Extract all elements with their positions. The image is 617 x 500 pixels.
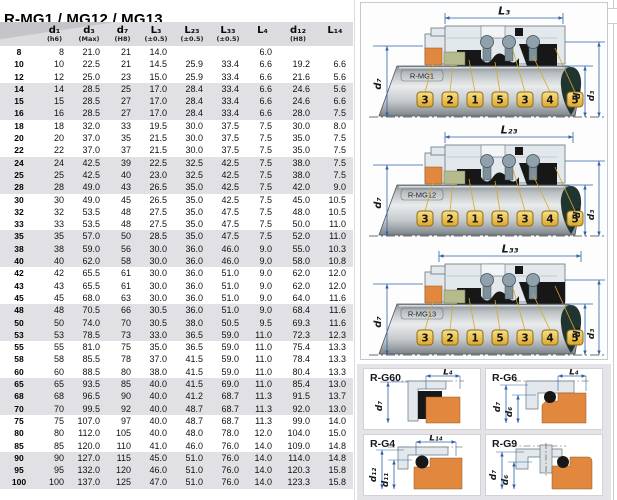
cell: 107.0 bbox=[71, 415, 107, 427]
callout-box: 4 bbox=[542, 92, 558, 107]
cell: 55 bbox=[38, 341, 71, 353]
cell: 36.0 bbox=[174, 292, 210, 304]
cell: 120.3 bbox=[279, 464, 317, 476]
cell: 110 bbox=[107, 440, 138, 452]
table-row: 686896.59040.041.268.711.391.513.7 bbox=[0, 390, 353, 402]
cell: 9.0 bbox=[246, 243, 279, 255]
cell: 51.0 bbox=[174, 452, 210, 464]
cell: 63 bbox=[107, 292, 138, 304]
top-dimension: L₃₃ bbox=[439, 243, 581, 263]
cell: 48.0 bbox=[279, 206, 317, 218]
cell: 30 bbox=[38, 194, 71, 206]
cell: 85 bbox=[38, 440, 71, 452]
cell: 68.7 bbox=[210, 403, 246, 415]
table-body: 8821.02114.06.0101022.52114.525.933.46.6… bbox=[0, 46, 353, 489]
cell: 7.5 bbox=[246, 230, 279, 242]
row-size-label: 8 bbox=[0, 46, 38, 58]
cell: 11.6 bbox=[317, 292, 353, 304]
cell: 38 bbox=[38, 243, 71, 255]
table-row: 141428.52517.028.433.46.624.65.6 bbox=[0, 83, 353, 95]
cell: 36.0 bbox=[174, 304, 210, 316]
cell: 73 bbox=[107, 329, 138, 341]
row-size-label: 90 bbox=[0, 452, 38, 464]
cell: 6.6 bbox=[246, 71, 279, 83]
seat-panel-g4: R-G4 L₁₄d₁₂d₁₁ bbox=[363, 434, 481, 496]
cell: 40 bbox=[107, 169, 138, 181]
cell: 7.5 bbox=[246, 181, 279, 193]
cell: 70 bbox=[107, 317, 138, 329]
cell: 7.5 bbox=[317, 157, 353, 169]
cell: 35.0 bbox=[279, 132, 317, 144]
cell: 48.0 bbox=[174, 427, 210, 439]
row-size-label: 50 bbox=[0, 317, 38, 329]
callout-box: 3 bbox=[517, 330, 533, 345]
table-row: 484870.56630.536.051.09.068.411.6 bbox=[0, 304, 353, 316]
callout-box: 3 bbox=[517, 211, 533, 226]
callout-box: 3 bbox=[517, 92, 533, 107]
column-header: d₃(Max) bbox=[71, 22, 107, 46]
seal-diagram-mg1: R-MG1 3 2 1 5 3 4 5 L₃ d₇ d₁ bbox=[361, 4, 607, 122]
cell: 127.0 bbox=[71, 452, 107, 464]
cell: 65.5 bbox=[71, 280, 107, 292]
cell: 68.7 bbox=[210, 390, 246, 402]
page-edge-tab bbox=[607, 8, 617, 24]
row-size-label: 45 bbox=[0, 292, 38, 304]
row-size-label: 10 bbox=[0, 58, 38, 70]
cell: 42.5 bbox=[210, 194, 246, 206]
table-row: 8585120.011041.046.076.014.0109.014.8 bbox=[0, 440, 353, 452]
cell: 40.0 bbox=[138, 403, 174, 415]
cell: 21.5 bbox=[138, 132, 174, 144]
cell: 75 bbox=[107, 341, 138, 353]
cell: 50 bbox=[107, 230, 138, 242]
cell: 10.8 bbox=[317, 255, 353, 267]
cell: 41.0 bbox=[138, 440, 174, 452]
cell: 11.6 bbox=[317, 304, 353, 316]
row-size-label: 70 bbox=[0, 403, 38, 415]
table-row: 656593.58540.041.569.011.085.413.0 bbox=[0, 378, 353, 390]
table-row: 181832.03319.530.037.57.530.08.0 bbox=[0, 120, 353, 132]
cell: 11.0 bbox=[317, 230, 353, 242]
row-size-label: 28 bbox=[0, 181, 38, 193]
cell: 13.7 bbox=[317, 390, 353, 402]
column-header: L₄ bbox=[246, 22, 279, 46]
svg-text:1: 1 bbox=[471, 333, 478, 345]
dim-label-d1: d₁ bbox=[573, 208, 583, 218]
table-row: 121225.02315.025.933.46.621.65.6 bbox=[0, 71, 353, 83]
cell: 46.0 bbox=[210, 243, 246, 255]
cell: 58 bbox=[107, 255, 138, 267]
dimensions-table: d₁(h6)d₃(Max)d₇(H8)L₃(±0.5)L₂₃(±0.5)L₃₃(… bbox=[0, 22, 353, 489]
cell: 41.2 bbox=[174, 390, 210, 402]
dim-label-d6: d₆ bbox=[505, 407, 515, 417]
cell: 61 bbox=[107, 280, 138, 292]
cell: 10.5 bbox=[317, 206, 353, 218]
svg-text:3: 3 bbox=[421, 214, 428, 226]
cell: 15.0 bbox=[317, 427, 353, 439]
row-size-label: 18 bbox=[0, 120, 38, 132]
cell: 99.0 bbox=[279, 415, 317, 427]
dim-label-d11: d₁₁ bbox=[381, 473, 391, 487]
cell: 100 bbox=[38, 476, 71, 488]
cell: 48 bbox=[107, 218, 138, 230]
seal-diagram-mg13: R-MG13 3 2 1 5 3 4 5 L₃₃ d₇ d₁ bbox=[361, 242, 607, 360]
seat-ring bbox=[425, 48, 442, 65]
cell: 52.0 bbox=[279, 230, 317, 242]
cell: 58 bbox=[38, 353, 71, 365]
cell: 90 bbox=[38, 452, 71, 464]
cell: 99.5 bbox=[71, 403, 107, 415]
row-size-label: 16 bbox=[0, 107, 38, 119]
cell: 35.0 bbox=[174, 218, 210, 230]
dim-label-top: L₂₃ bbox=[501, 124, 518, 137]
table-row: 222237.03721.530.037.57.535.07.5 bbox=[0, 144, 353, 156]
row-size-label: 43 bbox=[0, 280, 38, 292]
cell: 40.0 bbox=[138, 415, 174, 427]
table-row: 303049.04526.535.042.57.545.010.5 bbox=[0, 194, 353, 206]
table-row: 9090127.011545.051.076.014.0114.014.8 bbox=[0, 452, 353, 464]
table-row: 282849.04326.535.042.57.542.09.0 bbox=[0, 181, 353, 193]
table-row: 151528.52717.028.433.46.624.66.6 bbox=[0, 95, 353, 107]
cell: 33.0 bbox=[138, 329, 174, 341]
cell: 42.5 bbox=[71, 157, 107, 169]
cell: 59.0 bbox=[71, 243, 107, 255]
svg-text:5: 5 bbox=[496, 333, 503, 345]
cell: 36.5 bbox=[174, 341, 210, 353]
seat-panel-label: R-G6 bbox=[492, 372, 517, 384]
cell: 42 bbox=[38, 267, 71, 279]
cell: 66 bbox=[107, 304, 138, 316]
left-dimension: d₇ bbox=[375, 382, 408, 423]
cell: 27.5 bbox=[138, 206, 174, 218]
cell: 95 bbox=[38, 464, 71, 476]
cell: 90 bbox=[107, 390, 138, 402]
cell: 51.0 bbox=[174, 476, 210, 488]
callout-box: 2 bbox=[442, 92, 458, 107]
cell: 53.5 bbox=[71, 206, 107, 218]
model-label: R-MG13 bbox=[408, 310, 436, 319]
cell: 11.6 bbox=[317, 317, 353, 329]
cell: 51.0 bbox=[210, 292, 246, 304]
seal-diagrams-panel: R-MG1 3 2 1 5 3 4 5 L₃ d₇ d₁ bbox=[360, 2, 608, 360]
column-header: L₁₄ bbox=[317, 22, 353, 46]
cell: 22 bbox=[38, 144, 71, 156]
cell: 30.0 bbox=[138, 280, 174, 292]
table-row: 100100137.012547.051.076.014.0123.315.8 bbox=[0, 476, 353, 488]
column-header: d₇(H8) bbox=[107, 22, 138, 46]
cell: 120 bbox=[107, 464, 138, 476]
cell: 15 bbox=[38, 95, 71, 107]
cell: 12.3 bbox=[317, 329, 353, 341]
table-row: 535378.57333.036.559.011.072.312.3 bbox=[0, 329, 353, 341]
cell: 51.0 bbox=[174, 464, 210, 476]
cell: 37.5 bbox=[210, 144, 246, 156]
dim-label-d7: d₇ bbox=[373, 316, 384, 328]
cell: 105 bbox=[107, 427, 138, 439]
cell: 14.0 bbox=[246, 452, 279, 464]
cell bbox=[317, 46, 353, 58]
callout-box: 1 bbox=[467, 92, 483, 107]
row-size-label: 24 bbox=[0, 157, 38, 169]
cell: 37.5 bbox=[210, 120, 246, 132]
cell: 14.0 bbox=[246, 440, 279, 452]
cell: 11.0 bbox=[317, 218, 353, 230]
seat-panel-g60: R-G60 L₄d₇ bbox=[363, 368, 481, 430]
table-row: 434365.56130.036.051.09.062.012.0 bbox=[0, 280, 353, 292]
row-size-label: 55 bbox=[0, 341, 38, 353]
cell: 25.9 bbox=[174, 58, 210, 70]
cell: 35.0 bbox=[279, 144, 317, 156]
cell: 49.0 bbox=[71, 181, 107, 193]
row-size-label: 25 bbox=[0, 169, 38, 181]
cell: 17.0 bbox=[138, 83, 174, 95]
cell: 36.5 bbox=[174, 329, 210, 341]
cell: 33.4 bbox=[210, 71, 246, 83]
row-size-label: 75 bbox=[0, 415, 38, 427]
cell: 46.0 bbox=[174, 440, 210, 452]
cell: 36.0 bbox=[174, 280, 210, 292]
cell: 59.0 bbox=[210, 341, 246, 353]
cell: 30.0 bbox=[138, 292, 174, 304]
cell: 96.5 bbox=[71, 390, 107, 402]
cell: 15.8 bbox=[317, 476, 353, 488]
callout-box: 2 bbox=[442, 211, 458, 226]
cell: 30.0 bbox=[138, 243, 174, 255]
cell: 33.4 bbox=[210, 58, 246, 70]
table-row: 707099.59240.048.768.711.392.013.0 bbox=[0, 403, 353, 415]
dim-label-d7: d₇ bbox=[373, 197, 384, 209]
cell: 132.0 bbox=[71, 464, 107, 476]
dim-label-d1: d₁ bbox=[573, 89, 583, 99]
top-dimension: L₂₃ bbox=[445, 124, 573, 144]
seat-panel-label: R-G60 bbox=[370, 372, 401, 384]
cell: 26.5 bbox=[138, 181, 174, 193]
table-row: 252542.54023.032.542.57.538.07.5 bbox=[0, 169, 353, 181]
cell: 27 bbox=[107, 95, 138, 107]
cell: 38.0 bbox=[174, 317, 210, 329]
cell: 21 bbox=[107, 46, 138, 58]
cell: 39 bbox=[107, 157, 138, 169]
cell: 57.0 bbox=[71, 230, 107, 242]
cell: 74.0 bbox=[71, 317, 107, 329]
row-size-label: 48 bbox=[0, 304, 38, 316]
cell: 9.0 bbox=[246, 280, 279, 292]
svg-text:2: 2 bbox=[446, 95, 453, 107]
cell: 21.6 bbox=[279, 71, 317, 83]
cell: 12.0 bbox=[317, 280, 353, 292]
column-header: L₃₃(±0.5) bbox=[210, 22, 246, 46]
seat-ring bbox=[425, 167, 442, 184]
cell: 7.5 bbox=[317, 132, 353, 144]
dim-label-d7: d₇ bbox=[489, 470, 499, 480]
cell: 35.0 bbox=[174, 230, 210, 242]
cell: 9.0 bbox=[246, 304, 279, 316]
cell: 49.0 bbox=[71, 194, 107, 206]
cell: 76.0 bbox=[210, 464, 246, 476]
row-size-label: 35 bbox=[0, 230, 38, 242]
cell: 33.4 bbox=[210, 107, 246, 119]
cell: 62.0 bbox=[279, 267, 317, 279]
cell: 50 bbox=[38, 317, 71, 329]
callout-box: 4 bbox=[542, 330, 558, 345]
cell: 13.0 bbox=[317, 403, 353, 415]
row-size-label: 65 bbox=[0, 378, 38, 390]
cell: 33.4 bbox=[210, 95, 246, 107]
cell: 69.3 bbox=[279, 317, 317, 329]
cell: 21.5 bbox=[138, 144, 174, 156]
cell: 41.5 bbox=[174, 366, 210, 378]
shaft bbox=[379, 66, 578, 116]
cell: 47.5 bbox=[210, 230, 246, 242]
cell: 12.0 bbox=[246, 427, 279, 439]
cell: 36.0 bbox=[174, 255, 210, 267]
cell: 76.0 bbox=[210, 476, 246, 488]
cell: 7.5 bbox=[246, 132, 279, 144]
table-row: 424265.56130.036.051.09.062.012.0 bbox=[0, 267, 353, 279]
seal-diagram-mg12: R-MG12 3 2 1 5 3 4 5 L₂₃ d₇ d₁ bbox=[361, 123, 607, 241]
callout-box: 5 bbox=[492, 330, 508, 345]
cell: 23 bbox=[107, 71, 138, 83]
cell: 13.3 bbox=[317, 366, 353, 378]
cell: 78.5 bbox=[71, 329, 107, 341]
svg-text:4: 4 bbox=[546, 95, 553, 107]
cell: 28.4 bbox=[174, 83, 210, 95]
column-header: L₂₃(±0.5) bbox=[174, 22, 210, 46]
cell: 38.0 bbox=[279, 157, 317, 169]
o-ring bbox=[544, 391, 556, 403]
cell: 12.0 bbox=[317, 267, 353, 279]
dim-label-d12: d₁₂ bbox=[369, 468, 379, 482]
row-size-label: 15 bbox=[0, 95, 38, 107]
cell: 10.3 bbox=[317, 243, 353, 255]
row-size-label: 30 bbox=[0, 194, 38, 206]
seat-panels-grid: R-G60 L₄d₇ R-G6 L₄d₇d₆ R-G4 L₁₄d₁₂d₁₁ R-… bbox=[357, 364, 611, 500]
cell bbox=[174, 46, 210, 58]
cell: 6.6 bbox=[246, 58, 279, 70]
cell: 7.5 bbox=[246, 120, 279, 132]
cell: 42.0 bbox=[279, 181, 317, 193]
cell: 13.3 bbox=[317, 341, 353, 353]
cell: 97 bbox=[107, 415, 138, 427]
cell: 9.0 bbox=[246, 267, 279, 279]
cell: 35.0 bbox=[174, 181, 210, 193]
cell: 24.6 bbox=[279, 83, 317, 95]
cell: 76.0 bbox=[210, 452, 246, 464]
column-header: d₁(h6) bbox=[38, 22, 71, 46]
set-screw bbox=[515, 147, 523, 155]
cell: 42.5 bbox=[71, 169, 107, 181]
cell: 7.5 bbox=[246, 194, 279, 206]
cell: 22.5 bbox=[71, 58, 107, 70]
svg-text:3: 3 bbox=[521, 214, 528, 226]
cell: 17.0 bbox=[138, 95, 174, 107]
svg-text:4: 4 bbox=[546, 333, 553, 345]
cell: 24.6 bbox=[279, 95, 317, 107]
svg-text:3: 3 bbox=[421, 333, 428, 345]
cell: 14.8 bbox=[317, 452, 353, 464]
page-edge-line bbox=[613, 0, 614, 500]
row-size-label: 100 bbox=[0, 476, 38, 488]
cell: 123.3 bbox=[279, 476, 317, 488]
cell: 48.7 bbox=[174, 403, 210, 415]
callout-box: 4 bbox=[542, 211, 558, 226]
seat-ring bbox=[425, 286, 442, 303]
model-label: R-MG12 bbox=[408, 191, 436, 200]
dim-label-d1: d₁ bbox=[573, 327, 583, 337]
cell: 76.0 bbox=[210, 440, 246, 452]
cell: 65.5 bbox=[71, 267, 107, 279]
cell: 21.0 bbox=[71, 46, 107, 58]
cell: 68.4 bbox=[279, 304, 317, 316]
cell: 85 bbox=[107, 378, 138, 390]
cell: 48 bbox=[107, 206, 138, 218]
cell: 28 bbox=[38, 181, 71, 193]
cell: 14.0 bbox=[138, 46, 174, 58]
row-size-label: 85 bbox=[0, 440, 38, 452]
seat-panel-label: R-G4 bbox=[370, 438, 395, 450]
cell: 7.5 bbox=[246, 206, 279, 218]
cell: 62.0 bbox=[71, 255, 107, 267]
cell: 28.4 bbox=[174, 95, 210, 107]
cell: 22.5 bbox=[138, 157, 174, 169]
callout-box: 3 bbox=[417, 330, 433, 345]
cell: 47.0 bbox=[138, 476, 174, 488]
cell: 64.0 bbox=[279, 292, 317, 304]
cell: 28.5 bbox=[138, 230, 174, 242]
cell: 11.0 bbox=[246, 341, 279, 353]
cell: 40.0 bbox=[138, 390, 174, 402]
cell: 24 bbox=[38, 157, 71, 169]
svg-text:2: 2 bbox=[446, 333, 453, 345]
cell: 36.0 bbox=[174, 267, 210, 279]
cell: 25 bbox=[38, 169, 71, 181]
row-size-label: 33 bbox=[0, 218, 38, 230]
cell: 78.0 bbox=[210, 427, 246, 439]
cell: 26.5 bbox=[138, 194, 174, 206]
cell: 20 bbox=[38, 132, 71, 144]
row-size-label: 20 bbox=[0, 132, 38, 144]
cell: 35 bbox=[38, 230, 71, 242]
cell: 7.5 bbox=[246, 169, 279, 181]
cell: 7.5 bbox=[317, 169, 353, 181]
dim-label-l4: L₄ bbox=[443, 369, 453, 378]
table-panel-divider bbox=[354, 0, 355, 500]
dim-label-d6: d₆ bbox=[501, 475, 511, 485]
cell: 37.5 bbox=[210, 132, 246, 144]
cell: 11.0 bbox=[246, 329, 279, 341]
cell: 53.5 bbox=[71, 218, 107, 230]
dim-label-d7: d₇ bbox=[375, 401, 385, 411]
cell: 60 bbox=[38, 366, 71, 378]
svg-text:3: 3 bbox=[421, 95, 428, 107]
cell: 14.5 bbox=[138, 58, 174, 70]
callout-box: 2 bbox=[442, 330, 458, 345]
svg-text:3: 3 bbox=[521, 95, 528, 107]
svg-text:2: 2 bbox=[446, 214, 453, 226]
cell: 68.7 bbox=[210, 415, 246, 427]
cell: 45 bbox=[38, 292, 71, 304]
cell: 6.6 bbox=[246, 107, 279, 119]
cell: 55.0 bbox=[279, 243, 317, 255]
cell: 42.5 bbox=[210, 181, 246, 193]
svg-text:3: 3 bbox=[521, 333, 528, 345]
cell: 59.0 bbox=[210, 366, 246, 378]
cell: 51.0 bbox=[210, 267, 246, 279]
column-header: L₃(±0.5) bbox=[138, 22, 174, 46]
cell: 45 bbox=[107, 194, 138, 206]
cell: 104.0 bbox=[279, 427, 317, 439]
column-header: d₁₂(H8) bbox=[279, 22, 317, 46]
